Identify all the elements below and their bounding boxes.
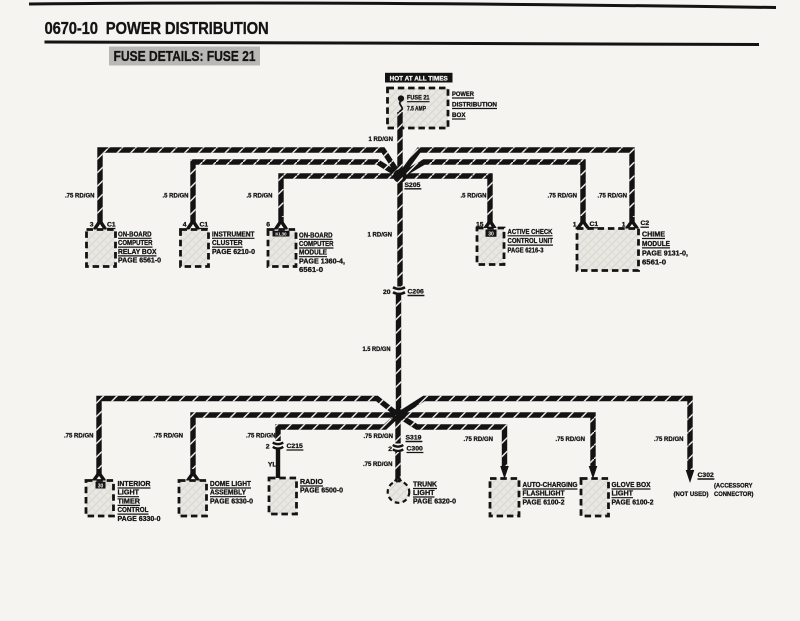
svg-text:.75 RD/GN: .75 RD/GN: [64, 433, 94, 440]
svg-text:30: 30: [488, 232, 494, 238]
svg-text:AUTO-CHARGING: AUTO-CHARGING: [523, 482, 578, 489]
svg-text:PAGE 6210-0: PAGE 6210-0: [212, 249, 255, 256]
svg-text:ON-BOARD: ON-BOARD: [299, 232, 333, 239]
svg-text:20: 20: [383, 289, 391, 296]
svg-text:6561-0: 6561-0: [299, 267, 323, 274]
svg-text:YL: YL: [268, 462, 277, 469]
svg-text:RADIO: RADIO: [300, 479, 324, 486]
svg-text:(NOT USED): (NOT USED): [674, 491, 709, 498]
svg-text:RELAY BOX: RELAY BOX: [118, 249, 157, 256]
svg-text:.75 RD/GN: .75 RD/GN: [654, 436, 684, 443]
svg-text:LIGHT: LIGHT: [413, 490, 435, 497]
svg-text:C206: C206: [408, 289, 424, 296]
svg-text:KL30: KL30: [275, 231, 287, 236]
svg-text:.5 RD/GN: .5 RD/GN: [163, 193, 189, 200]
svg-text:4: 4: [183, 222, 187, 229]
svg-text:POWER: POWER: [452, 91, 474, 98]
svg-text:MODULE: MODULE: [642, 241, 670, 248]
svg-text:30: 30: [98, 483, 104, 489]
svg-text:PAGE 6320-0: PAGE 6320-0: [413, 499, 456, 506]
svg-text:COMPUTER: COMPUTER: [118, 240, 153, 247]
svg-text:C300: C300: [407, 446, 423, 453]
svg-text:.75 RD/GN: .75 RD/GN: [364, 433, 394, 440]
svg-text:C1: C1: [590, 221, 599, 228]
svg-text:BOX: BOX: [452, 112, 466, 119]
svg-text:6561-0: 6561-0: [642, 260, 666, 267]
svg-text:2: 2: [388, 446, 392, 453]
svg-text:1 RD/GN: 1 RD/GN: [368, 232, 393, 239]
svg-text:TIMER: TIMER: [118, 498, 141, 505]
svg-text:1 RD/GN: 1 RD/GN: [369, 136, 394, 143]
svg-text:ON-BOARD: ON-BOARD: [118, 231, 152, 238]
svg-text:PAGE 1360-4,: PAGE 1360-4,: [299, 258, 345, 265]
svg-text:PAGE 6561-0: PAGE 6561-0: [118, 258, 161, 265]
svg-text:COMPUTER: COMPUTER: [299, 241, 334, 248]
svg-text:FLASHLIGHT: FLASHLIGHT: [523, 491, 566, 498]
svg-text:INSTRUMENT: INSTRUMENT: [212, 231, 255, 238]
svg-text:FUSE 21: FUSE 21: [407, 95, 430, 102]
svg-text:PAGE 6216-3: PAGE 6216-3: [508, 247, 544, 254]
svg-text:.5 RD/GN: .5 RD/GN: [247, 193, 273, 200]
svg-text:S319: S319: [406, 435, 422, 442]
svg-text:.75 RD/GN: .75 RD/GN: [598, 193, 628, 200]
svg-text:CHIME: CHIME: [642, 232, 665, 239]
svg-text:0670-10 POWER DISTRIBUTION: 0670-10 POWER DISTRIBUTION: [45, 18, 269, 38]
svg-text:CONNECTOR): CONNECTOR): [714, 491, 754, 498]
svg-text:LIGHT: LIGHT: [118, 490, 140, 497]
svg-text:GLOVE BOX: GLOVE BOX: [612, 482, 651, 489]
svg-text:.75 RD/GN: .75 RD/GN: [246, 433, 276, 440]
svg-text:.75 RD/GN: .75 RD/GN: [548, 193, 578, 200]
svg-text:(ACCESSORY: (ACCESSORY: [714, 483, 753, 490]
svg-text:.75 RD/GN: .75 RD/GN: [154, 433, 184, 440]
svg-text:MODULE: MODULE: [299, 250, 327, 257]
svg-text:C2: C2: [641, 220, 650, 227]
svg-text:.5 RD/GN: .5 RD/GN: [461, 193, 487, 200]
svg-text:ASSEMBLY: ASSEMBLY: [210, 490, 246, 497]
svg-text:C302: C302: [698, 472, 714, 479]
svg-text:.75 RD/GN: .75 RD/GN: [65, 193, 95, 200]
svg-text:PAGE 6330-0: PAGE 6330-0: [210, 498, 253, 505]
svg-text:PAGE 6330-0: PAGE 6330-0: [118, 516, 161, 523]
svg-text:2: 2: [266, 444, 270, 451]
svg-text:.75 RD/GN: .75 RD/GN: [363, 461, 393, 468]
svg-text:ACTIVE CHECK: ACTIVE CHECK: [508, 229, 553, 236]
svg-text:CONTROL: CONTROL: [118, 507, 150, 514]
svg-text:C1: C1: [107, 222, 116, 229]
svg-text:.75 RD/GN: .75 RD/GN: [464, 436, 494, 443]
svg-text:.75 RD/GN: .75 RD/GN: [556, 436, 586, 443]
svg-text:DOME LIGHT: DOME LIGHT: [210, 481, 252, 488]
svg-text:PAGE 6100-2: PAGE 6100-2: [523, 499, 565, 506]
svg-text:3: 3: [90, 222, 94, 229]
svg-text:TRUNK: TRUNK: [413, 482, 437, 489]
svg-text:PAGE 9131-0,: PAGE 9131-0,: [642, 250, 688, 257]
svg-text:CLUSTER: CLUSTER: [212, 240, 243, 247]
svg-text:INTERIOR: INTERIOR: [118, 481, 151, 488]
svg-text:HOT AT ALL TIMES: HOT AT ALL TIMES: [390, 75, 449, 82]
svg-text:LIGHT: LIGHT: [612, 491, 634, 498]
svg-text:1.5 RD/GN: 1.5 RD/GN: [363, 346, 391, 353]
svg-text:DISTRIBUTION: DISTRIBUTION: [452, 102, 497, 109]
svg-text:CONTROL UNIT: CONTROL UNIT: [508, 238, 554, 245]
svg-text:PAGE 6100-2: PAGE 6100-2: [612, 499, 654, 506]
svg-text:C1: C1: [200, 222, 209, 229]
svg-text:FUSE DETAILS: FUSE 21: FUSE DETAILS: FUSE 21: [114, 48, 256, 65]
svg-text:PAGE 6500-0: PAGE 6500-0: [300, 488, 343, 495]
svg-text:7.5 AMP: 7.5 AMP: [407, 106, 427, 113]
svg-text:S205: S205: [405, 182, 421, 189]
svg-text:C215: C215: [287, 443, 303, 450]
svg-text:6: 6: [266, 222, 270, 229]
